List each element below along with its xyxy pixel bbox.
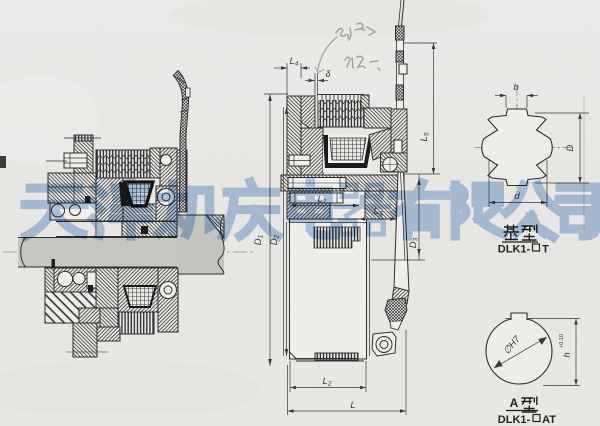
svg-text:AT: AT bbox=[542, 414, 556, 426]
svg-text:DLK1-: DLK1- bbox=[498, 244, 531, 256]
svg-text:A: A bbox=[510, 396, 519, 410]
svg-text:D: D bbox=[565, 144, 576, 151]
svg-text:b: b bbox=[513, 82, 518, 93]
svg-text:T: T bbox=[542, 244, 549, 256]
svg-text:L: L bbox=[350, 400, 355, 411]
svg-text:DLK1-: DLK1- bbox=[498, 414, 531, 426]
svg-text:h: h bbox=[562, 352, 573, 357]
svg-text:+0.10: +0.10 bbox=[559, 334, 565, 348]
